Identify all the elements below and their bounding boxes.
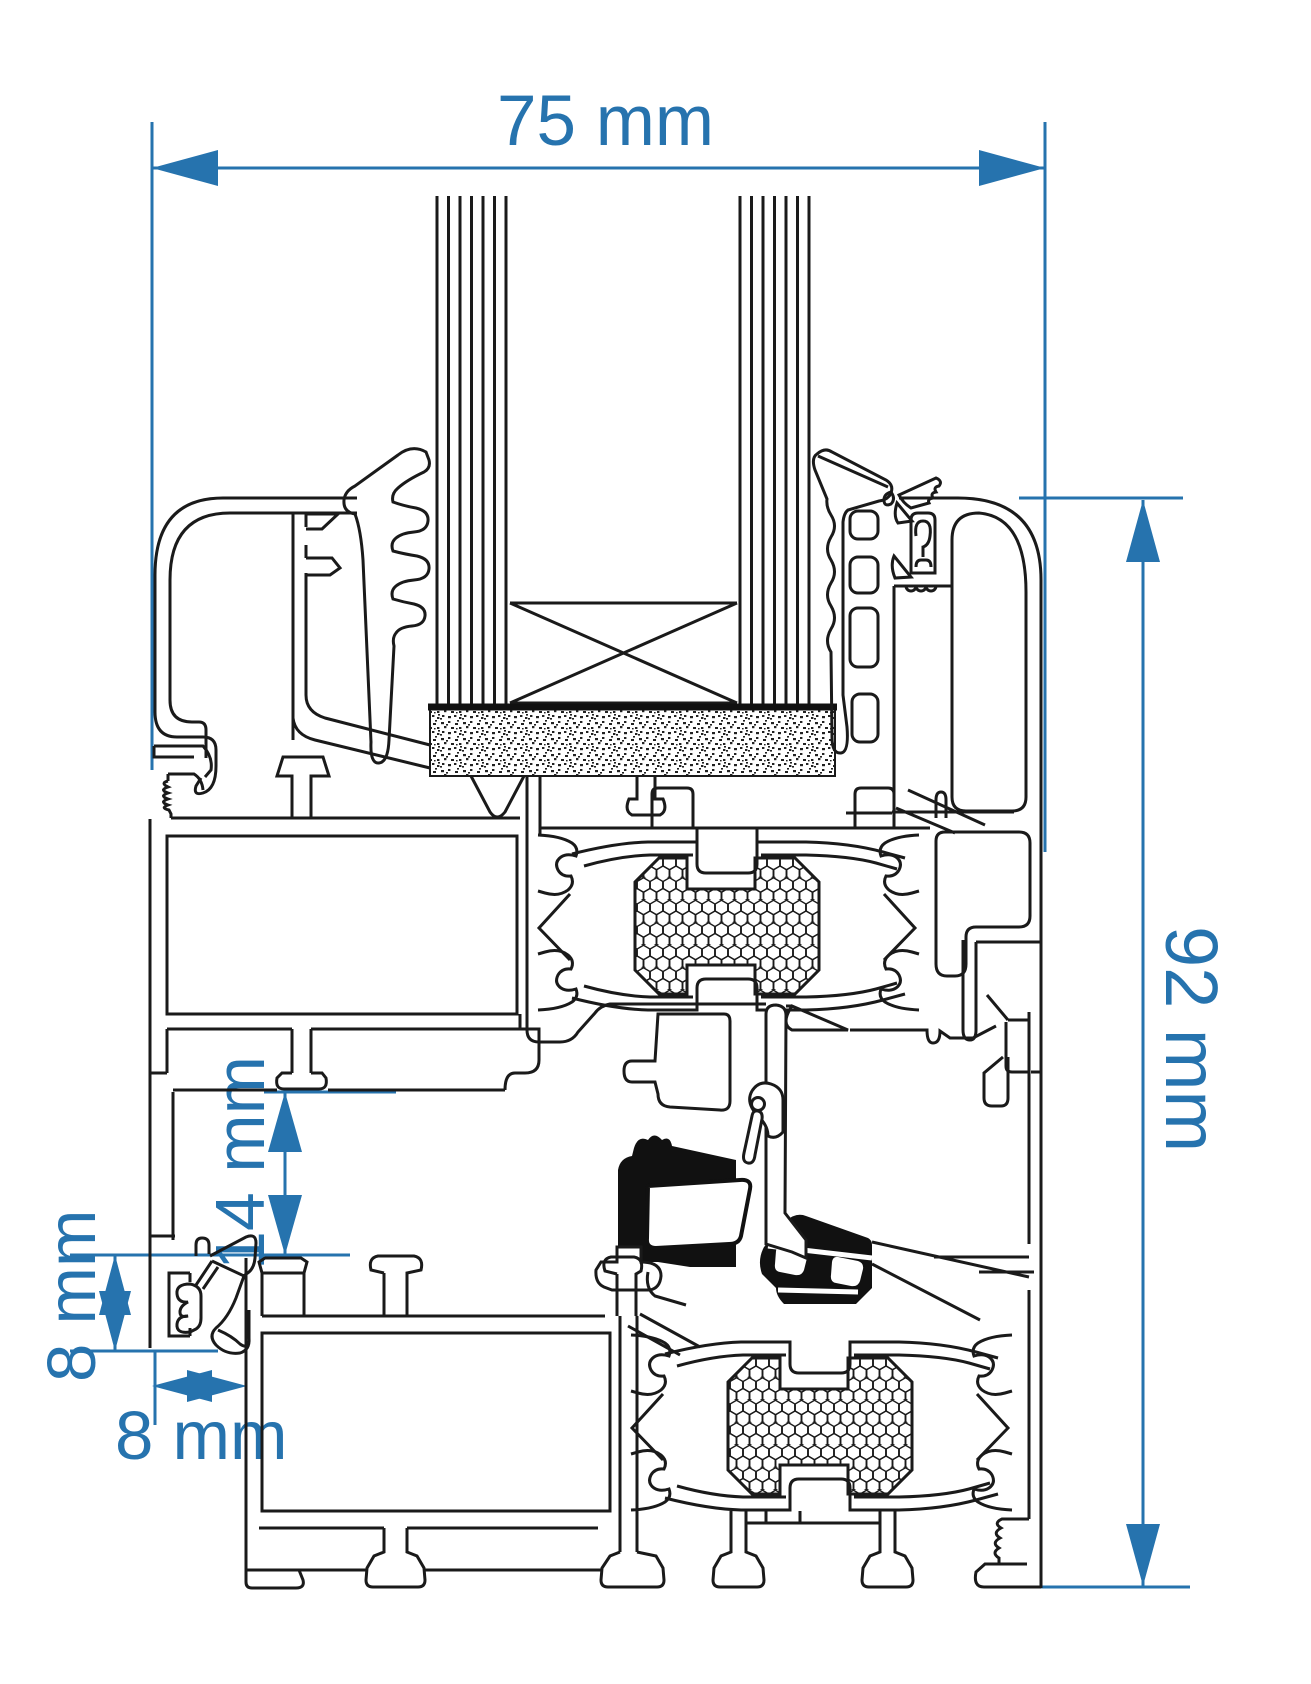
svg-text:8 mm: 8 mm	[33, 1210, 110, 1383]
svg-text:92 mm: 92 mm	[1150, 926, 1233, 1152]
svg-text:75 mm: 75 mm	[497, 82, 714, 161]
svg-text:14 mm: 14 mm	[201, 1056, 279, 1270]
